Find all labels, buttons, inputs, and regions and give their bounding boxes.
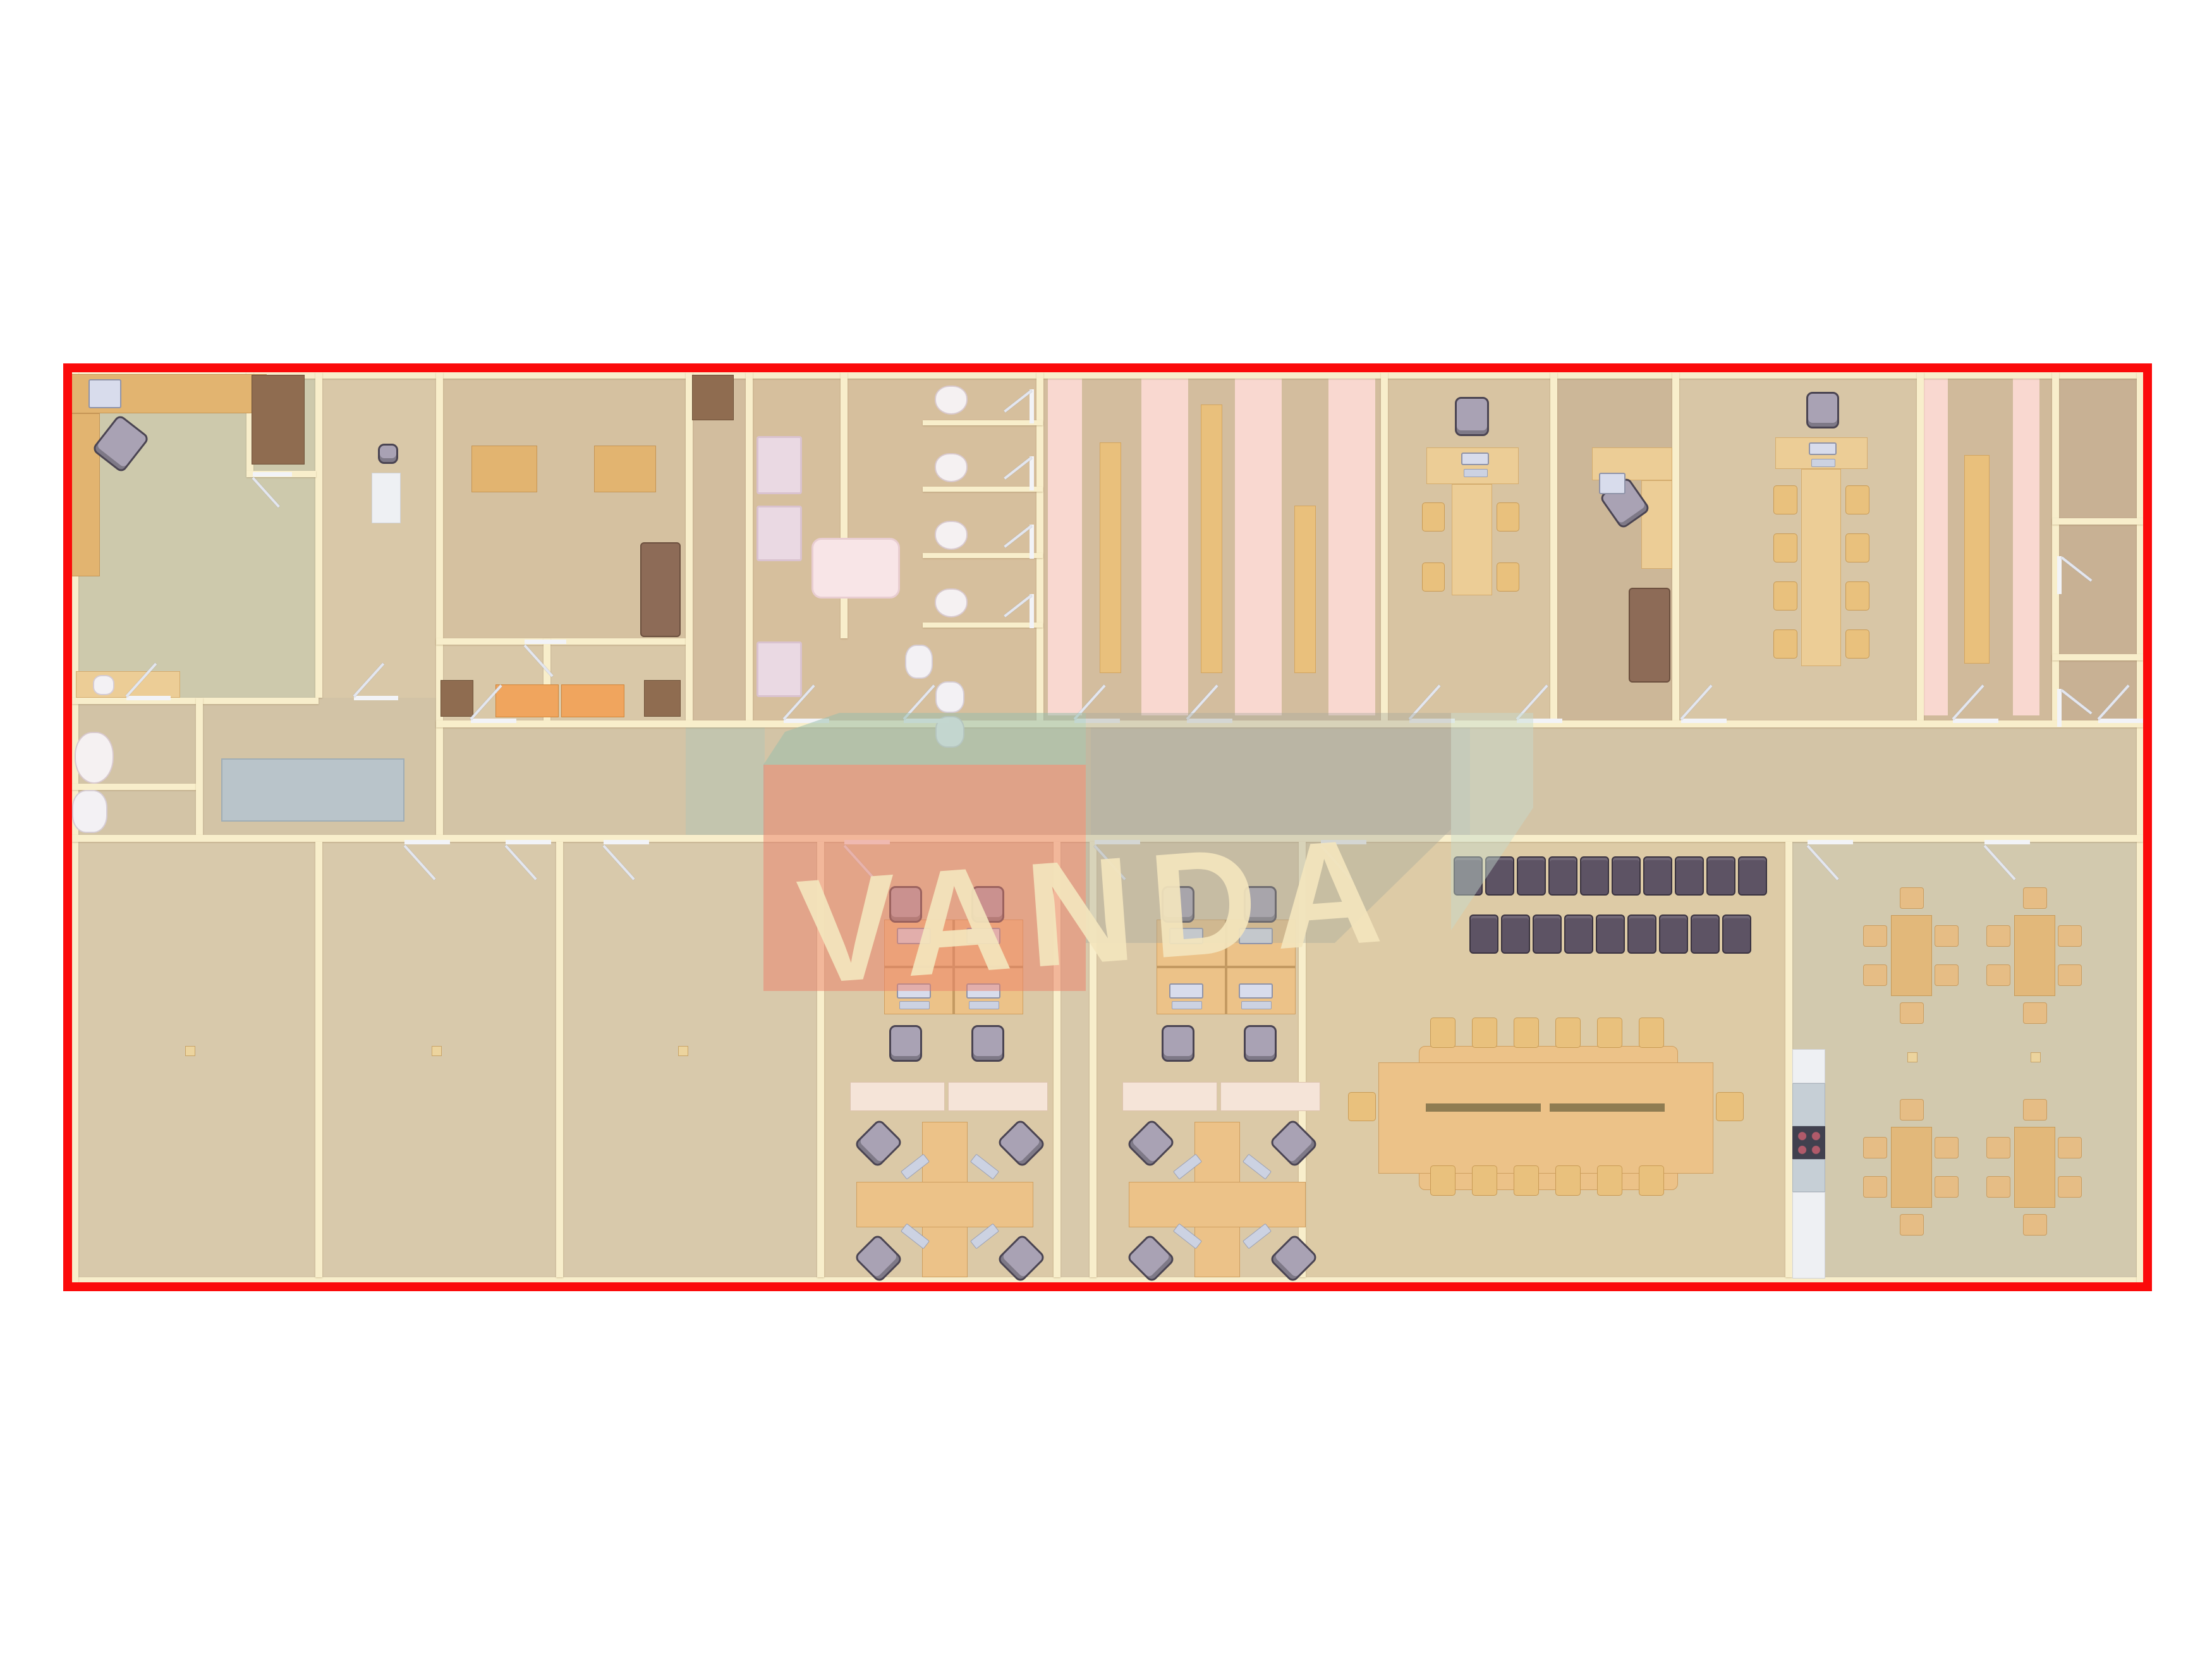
door-jamb (2057, 556, 2062, 594)
floor-corridor-teal (686, 720, 765, 835)
dining-stool (1863, 964, 1887, 986)
door-jamb (1681, 719, 1727, 723)
hall-seat-row-1 (1675, 856, 1704, 896)
wall-right (2137, 372, 2143, 1284)
credenza (850, 1082, 945, 1111)
hall-seat-row-2 (1722, 915, 1751, 954)
pink-stripe (1235, 372, 1282, 715)
hall-seat-row-2 (1533, 915, 1562, 954)
dining-table (2014, 1127, 2055, 1208)
pink-stripe (2013, 372, 2039, 715)
dining-stool (1863, 1176, 1887, 1198)
stall-door-jamb (1030, 525, 1034, 559)
wall-right-room-div2 (2052, 654, 2143, 660)
small-room-desk (495, 684, 559, 717)
big-table-chair-left (1348, 1092, 1376, 1121)
office2-desk-b (1641, 480, 1672, 569)
conf-monitor (1809, 442, 1837, 455)
conf-chair-right (1845, 485, 1869, 514)
dining-stool (1900, 887, 1924, 909)
door-jamb (1953, 719, 1998, 723)
sink (935, 681, 964, 713)
wall-roomb-right (436, 372, 443, 835)
door-jamb (2057, 689, 2062, 727)
door-jamb (1984, 840, 2030, 844)
closet-cabinet (252, 375, 305, 465)
hall-seat-row-1 (1738, 856, 1767, 896)
meeting1-keyboard (1464, 469, 1488, 477)
stall-door-jamb (1030, 594, 1034, 628)
dining-stool (2058, 964, 2082, 986)
door-jamb (354, 696, 398, 700)
big-table-slot (1550, 1103, 1665, 1112)
door-jamb (506, 840, 551, 844)
workstation-monitor (1239, 983, 1273, 999)
toilet (935, 588, 968, 617)
cross-desk-horizontal (1129, 1182, 1306, 1227)
pink-stripe (1921, 372, 1948, 715)
conf-keyboard (1811, 459, 1835, 467)
shower-tray-large (221, 758, 404, 822)
workstation-keyboard (1241, 1001, 1272, 1009)
workstation-chair (1244, 1025, 1277, 1062)
toilet (935, 521, 968, 550)
floor-socket (185, 1046, 195, 1056)
credenza (1220, 1082, 1320, 1111)
dining-stool (1935, 1176, 1959, 1198)
big-table-chair-top (1555, 1018, 1581, 1048)
hall-seat-row-1 (1612, 856, 1641, 896)
hall-seat-row-1 (1548, 856, 1577, 896)
kitchen-counter-grey (1792, 1083, 1825, 1126)
conf-chair-right (1845, 581, 1869, 611)
kitchen-counter-white (1792, 1049, 1825, 1083)
meeting1-chair (1422, 502, 1445, 532)
dining-stool (2058, 925, 2082, 947)
wall-stall-4 (923, 623, 1043, 628)
wall-mid-2 (746, 372, 753, 720)
shower-stall (757, 436, 802, 494)
wall-mid-1 (686, 372, 693, 720)
kitchen-counter-grey (1792, 1159, 1825, 1192)
meeting1-chair (1497, 562, 1519, 592)
door-jamb (126, 696, 171, 700)
floor-right-rooms (2059, 372, 2143, 720)
wall-basin (905, 645, 933, 679)
big-table-chair-top (1430, 1018, 1455, 1048)
wall-conf-left (1672, 372, 1679, 720)
wall-wc-right (196, 698, 203, 835)
door-jamb (471, 719, 516, 723)
wall-right-room-div1 (2052, 518, 2143, 525)
pink-stripe (1328, 372, 1375, 715)
bathtub (811, 538, 900, 599)
hall-seat-row-2 (1627, 915, 1656, 954)
dining-stool (1900, 1002, 1924, 1024)
office2-sofa (1629, 588, 1670, 683)
floor-socket (2031, 1052, 2041, 1062)
dining-table (2014, 915, 2055, 996)
big-table-chair-bottom (1514, 1165, 1539, 1196)
credenza (948, 1082, 1048, 1111)
hall-seat-row-1 (1580, 856, 1609, 896)
dining-stool (2058, 1176, 2082, 1198)
roomc-desk-2 (594, 446, 656, 492)
conf-chair-right (1845, 533, 1869, 562)
big-table-chair-top (1597, 1018, 1622, 1048)
conf-chair-right (1845, 629, 1869, 659)
big-table-chair-bottom (1555, 1165, 1581, 1196)
hall-seat-row-2 (1596, 915, 1625, 954)
dining-stool (2023, 1099, 2047, 1121)
door-jamb (2098, 719, 2144, 723)
exec-desk-side (70, 413, 100, 576)
meeting1-monitor (1461, 453, 1489, 465)
big-table-chair-top (1472, 1018, 1497, 1048)
office2-laptop (1599, 473, 1626, 494)
roomb-table (372, 473, 401, 523)
dining-stool (1986, 925, 2010, 947)
door-jamb (404, 840, 450, 844)
hall-seat-row-2 (1501, 915, 1530, 954)
wall-office2-left (1550, 372, 1557, 720)
wall-stall-3 (923, 553, 1043, 558)
dining-stool (1935, 925, 1959, 947)
wall-stall-2 (923, 487, 1043, 492)
workstation-chair (1162, 1025, 1194, 1062)
big-table-chair-right (1716, 1092, 1744, 1121)
meeting1-chair (1497, 502, 1519, 532)
hall-seat-row-1 (1517, 856, 1546, 896)
wall-bottom (72, 1277, 2143, 1284)
wall-hall-right (1785, 842, 1792, 1277)
dining-stool (1986, 1137, 2010, 1158)
hall-seat-row-2 (1564, 915, 1593, 954)
wc-toilet (75, 732, 114, 784)
big-table-long (1378, 1062, 1713, 1174)
dining-stool (1935, 1137, 1959, 1158)
shower-stall (757, 641, 802, 697)
wall-top (72, 372, 2143, 379)
dining-stool (1863, 925, 1887, 947)
floor-socket (432, 1046, 442, 1056)
door-jamb (253, 472, 292, 477)
big-table-chair-bottom (1472, 1165, 1497, 1196)
credenza (1122, 1082, 1217, 1111)
wc-bidet (72, 790, 107, 833)
exec-laptop (88, 379, 121, 408)
small-room-armchair (644, 680, 681, 717)
shower-stall (757, 506, 802, 561)
big-table-chair-bottom (1639, 1165, 1664, 1196)
toilet (935, 453, 968, 482)
conf-chair-left (1773, 629, 1797, 659)
cross-desk-horizontal (856, 1182, 1033, 1227)
hall-seat-row-1 (1706, 856, 1735, 896)
roomc-sofa (640, 542, 681, 637)
floor-plan-canvas: VANDA (0, 0, 2212, 1659)
dining-stool (2023, 887, 2047, 909)
door-jamb (525, 640, 566, 644)
dining-stool (1986, 1176, 2010, 1198)
big-table-chair-bottom (1430, 1165, 1455, 1196)
floor-socket (1907, 1052, 1917, 1062)
stall-door-jamb (1030, 389, 1034, 423)
pink-stripe (1141, 372, 1188, 715)
dining-stool (2023, 1002, 2047, 1024)
big-table-chair-bottom (1597, 1165, 1622, 1196)
wall-zone2-left (1917, 372, 1924, 720)
conf-chair-left (1773, 485, 1797, 514)
wall-bottom-v2 (556, 842, 563, 1277)
conf-exec-chair (1806, 392, 1839, 428)
big-table-slot (1426, 1103, 1541, 1112)
zone1-bench (1201, 404, 1222, 673)
wall-bottom-v1 (315, 842, 322, 1277)
hall-seat-row-1 (1643, 856, 1672, 896)
wall-exec-right (315, 372, 322, 698)
toilet (935, 386, 968, 415)
dining-stool (1900, 1099, 1924, 1121)
floor-mid-room (693, 372, 746, 720)
meeting1-table-stem (1452, 484, 1492, 595)
conf-table-stem (1801, 469, 1841, 666)
workstation-chair (971, 1025, 1004, 1062)
wall-stall-1 (923, 420, 1043, 425)
dining-table (1891, 915, 1932, 996)
dining-stool (1935, 964, 1959, 986)
zone1-bench (1294, 506, 1316, 673)
conf-chair-left (1773, 581, 1797, 611)
wall-meeting1-left (1381, 372, 1388, 720)
small-room-desk (561, 684, 624, 717)
kitchen-stove (1792, 1126, 1825, 1159)
workstation-keyboard (1172, 1001, 1202, 1009)
hall-seat-row-2 (1691, 915, 1720, 954)
pink-stripe (1048, 372, 1082, 715)
dining-stool (1986, 964, 2010, 986)
door-jamb (1808, 840, 1853, 844)
wall-wc-divider (72, 784, 198, 790)
door-jamb (604, 840, 649, 844)
zone2-bench (1964, 455, 1990, 664)
wall-right-rooms-left (2052, 372, 2059, 720)
roomc-desk-1 (471, 446, 537, 492)
small-room-armchair (441, 680, 473, 717)
big-table-chair-top (1514, 1018, 1539, 1048)
big-table-chair-top (1639, 1018, 1664, 1048)
floor-conference-room (1679, 372, 1917, 720)
meeting1-chair (1422, 562, 1445, 592)
stall-door-jamb (1030, 456, 1034, 490)
dining-stool (1863, 1137, 1887, 1158)
dining-stool (1900, 1214, 1924, 1236)
floor-socket (678, 1046, 688, 1056)
hall-seat-row-2 (1659, 915, 1688, 954)
hall-seat-row-2 (1469, 915, 1498, 954)
wall-exec-bottom (72, 698, 319, 704)
mid-room-cabinet (692, 375, 734, 420)
floor-canteen (1792, 842, 2143, 1277)
dining-stool (2023, 1214, 2047, 1236)
vanity-basin (93, 675, 114, 695)
workstation-chair (889, 1025, 922, 1062)
meeting1-exec-chair (1455, 397, 1489, 436)
kitchen-counter-white (1792, 1192, 1825, 1279)
zone1-bench (1100, 442, 1121, 673)
dining-table (1891, 1127, 1932, 1208)
conf-chair-left (1773, 533, 1797, 562)
roomb-stool (378, 444, 398, 464)
dining-stool (2058, 1137, 2082, 1158)
